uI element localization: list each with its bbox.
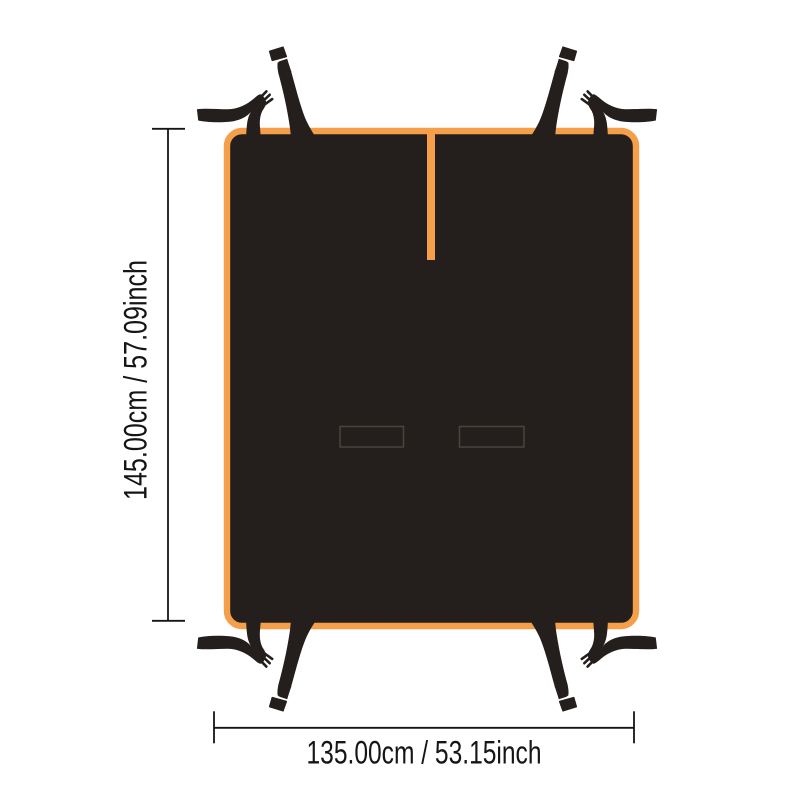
svg-text:135.00cm / 53.15inch: 135.00cm / 53.15inch [307,735,542,771]
svg-text:145.00cm / 57.09inch: 145.00cm / 57.09inch [118,260,154,500]
